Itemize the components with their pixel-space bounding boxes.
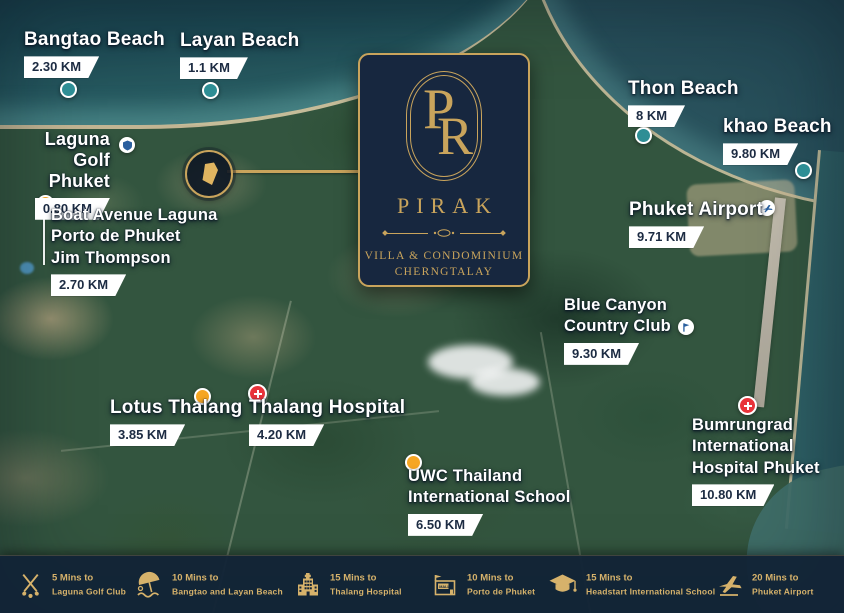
project-name: PIRAK [390,193,498,219]
travel-place: Phuket Airport [752,585,814,598]
location-name: Porto de Phuket [51,226,217,247]
divider-line [387,233,428,234]
label-layan-beach: Layan Beach 1.1 KM [180,30,299,79]
monogram-arch-frame: P R [406,71,482,181]
cloud [470,368,540,396]
distance-badge: 8 KM [628,105,685,127]
divider-diamond-icon [500,230,506,236]
mall-icon: MALL [432,572,458,597]
travel-minutes: 5 Mins to [52,571,126,585]
label-thalang-hospital: Thalang Hospital 4.20 KM [249,397,405,446]
location-name: Thon Beach [628,78,739,100]
label-blue-canyon-country-club: Blue Canyon Country Club 9.30 KM [564,295,671,365]
travel-item-thalang-hospital: 15 Mins to Thalang Hospital [295,571,402,598]
label-bangtao-beach: Bangtao Beach 2.30 KM [24,29,165,78]
travel-item-porto-de-phuket: MALL 10 Mins to Porto de Phuket [432,571,535,598]
location-name: UWC Thailand [408,466,571,487]
monogram-arch-inner: P R [410,75,478,177]
divider-ornament-icon [431,228,457,238]
blue-canyon-golf-marker [678,319,694,335]
thon-beach-marker [635,127,652,144]
location-name: Phuket Airport [629,199,763,221]
travel-place: Porto de Phuket [467,585,535,598]
distance-badge: 10.80 KM [692,484,774,506]
travel-minutes: 15 Mins to [330,571,402,585]
mall-sign-text: MALL [439,584,450,588]
label-bumrungrad-hospital: Bumrungrad International Hospital Phuket… [692,415,820,506]
monogram-letter-r: R [437,109,473,163]
hospital-building-icon [295,572,321,598]
location-name: Bumrungrad [692,415,820,436]
location-name: Phuket [6,171,110,192]
travel-minutes: 10 Mins to [467,571,535,585]
location-name: Lotus Thalang [110,397,242,419]
laguna-golf-emblem-marker [119,137,135,153]
location-name: International [692,436,820,457]
project-subtitle: VILLA & CONDOMINIUM [365,250,524,262]
ornament-divider [383,228,505,238]
label-khao-beach: khao Beach 9.80 KM [723,116,832,165]
travel-minutes: 10 Mins to [172,571,283,585]
distance-badge: 4.20 KM [249,424,324,446]
travel-minutes: 20 Mins to [752,571,814,585]
label-uwc-school: UWC Thailand International School 6.50 K… [408,466,571,536]
location-name: Hospital Phuket [692,458,820,479]
divider-diamond-icon [382,230,388,236]
travel-item-phuket-airport: 20 Mins to Phuket Airport [716,571,814,598]
golf-clubs-icon [18,571,43,598]
beach-umbrella-icon [136,571,163,598]
travel-minutes: 15 Mins to [586,571,715,585]
distance-badge: 2.70 KM [51,274,126,296]
location-name: Bangtao Beach [24,29,165,51]
project-connector-line [227,170,359,173]
location-name: Thalang Hospital [249,397,405,419]
lagoon [20,262,34,274]
bangtao-beach-marker [60,81,77,98]
distance-badge: 2.30 KM [24,56,99,78]
location-name: Boat Avenue Laguna [51,205,217,226]
travel-place: Headstart International School [586,585,715,598]
location-name: International School [408,487,571,508]
divider-line [460,233,501,234]
travel-place: Laguna Golf Club [52,585,126,598]
project-card: P R PIRAK VILLA & CONDOMINIUM CHERNGTALA… [358,53,530,287]
location-name: Jim Thompson [51,248,217,269]
distance-badge: 3.85 KM [110,424,185,446]
location-name: Blue Canyon [564,295,671,316]
location-name: Layan Beach [180,30,299,52]
pirak-site-marker [185,150,233,198]
label-lotus-thalang: Lotus Thalang 3.85 KM [110,397,242,446]
distance-badge: 1.1 KM [180,57,248,79]
distance-badge: 9.80 KM [723,143,798,165]
location-name: khao Beach [723,116,832,138]
travel-time-bar: 5 Mins to Laguna Golf Club 10 Mins to Ba… [0,555,844,613]
airplane-icon [762,203,773,214]
travel-item-headstart-school: 15 Mins to Headstart International Schoo… [548,571,715,598]
layan-beach-marker [202,82,219,99]
label-phuket-airport: Phuket Airport 9.71 KM [629,199,763,248]
project-location: CHERNGTALAY [395,266,494,278]
location-name: Laguna Golf [6,129,110,171]
graduation-cap-icon [548,572,577,597]
golf-shield-icon [123,140,132,151]
bumrungrad-hospital-marker [738,396,757,415]
airplane-icon [716,572,743,598]
travel-item-laguna-golf: 5 Mins to Laguna Golf Club [18,571,126,598]
travel-place: Bangtao and Layan Beach [172,585,283,598]
distance-badge: 6.50 KM [408,514,483,536]
distance-badge: 9.71 KM [629,226,704,248]
label-boat-avenue-group: Boat Avenue Laguna Porto de Phuket Jim T… [51,205,217,296]
travel-place: Thalang Hospital [330,585,402,598]
pirak-location-map: Bangtao Beach 2.30 KM Layan Beach 1.1 KM… [0,0,844,613]
golf-flag-icon [681,322,691,333]
travel-item-beaches: 10 Mins to Bangtao and Layan Beach [136,571,283,598]
distance-badge: 9.30 KM [564,343,639,365]
location-name: Country Club [564,316,671,337]
land-plot-icon [199,162,219,186]
